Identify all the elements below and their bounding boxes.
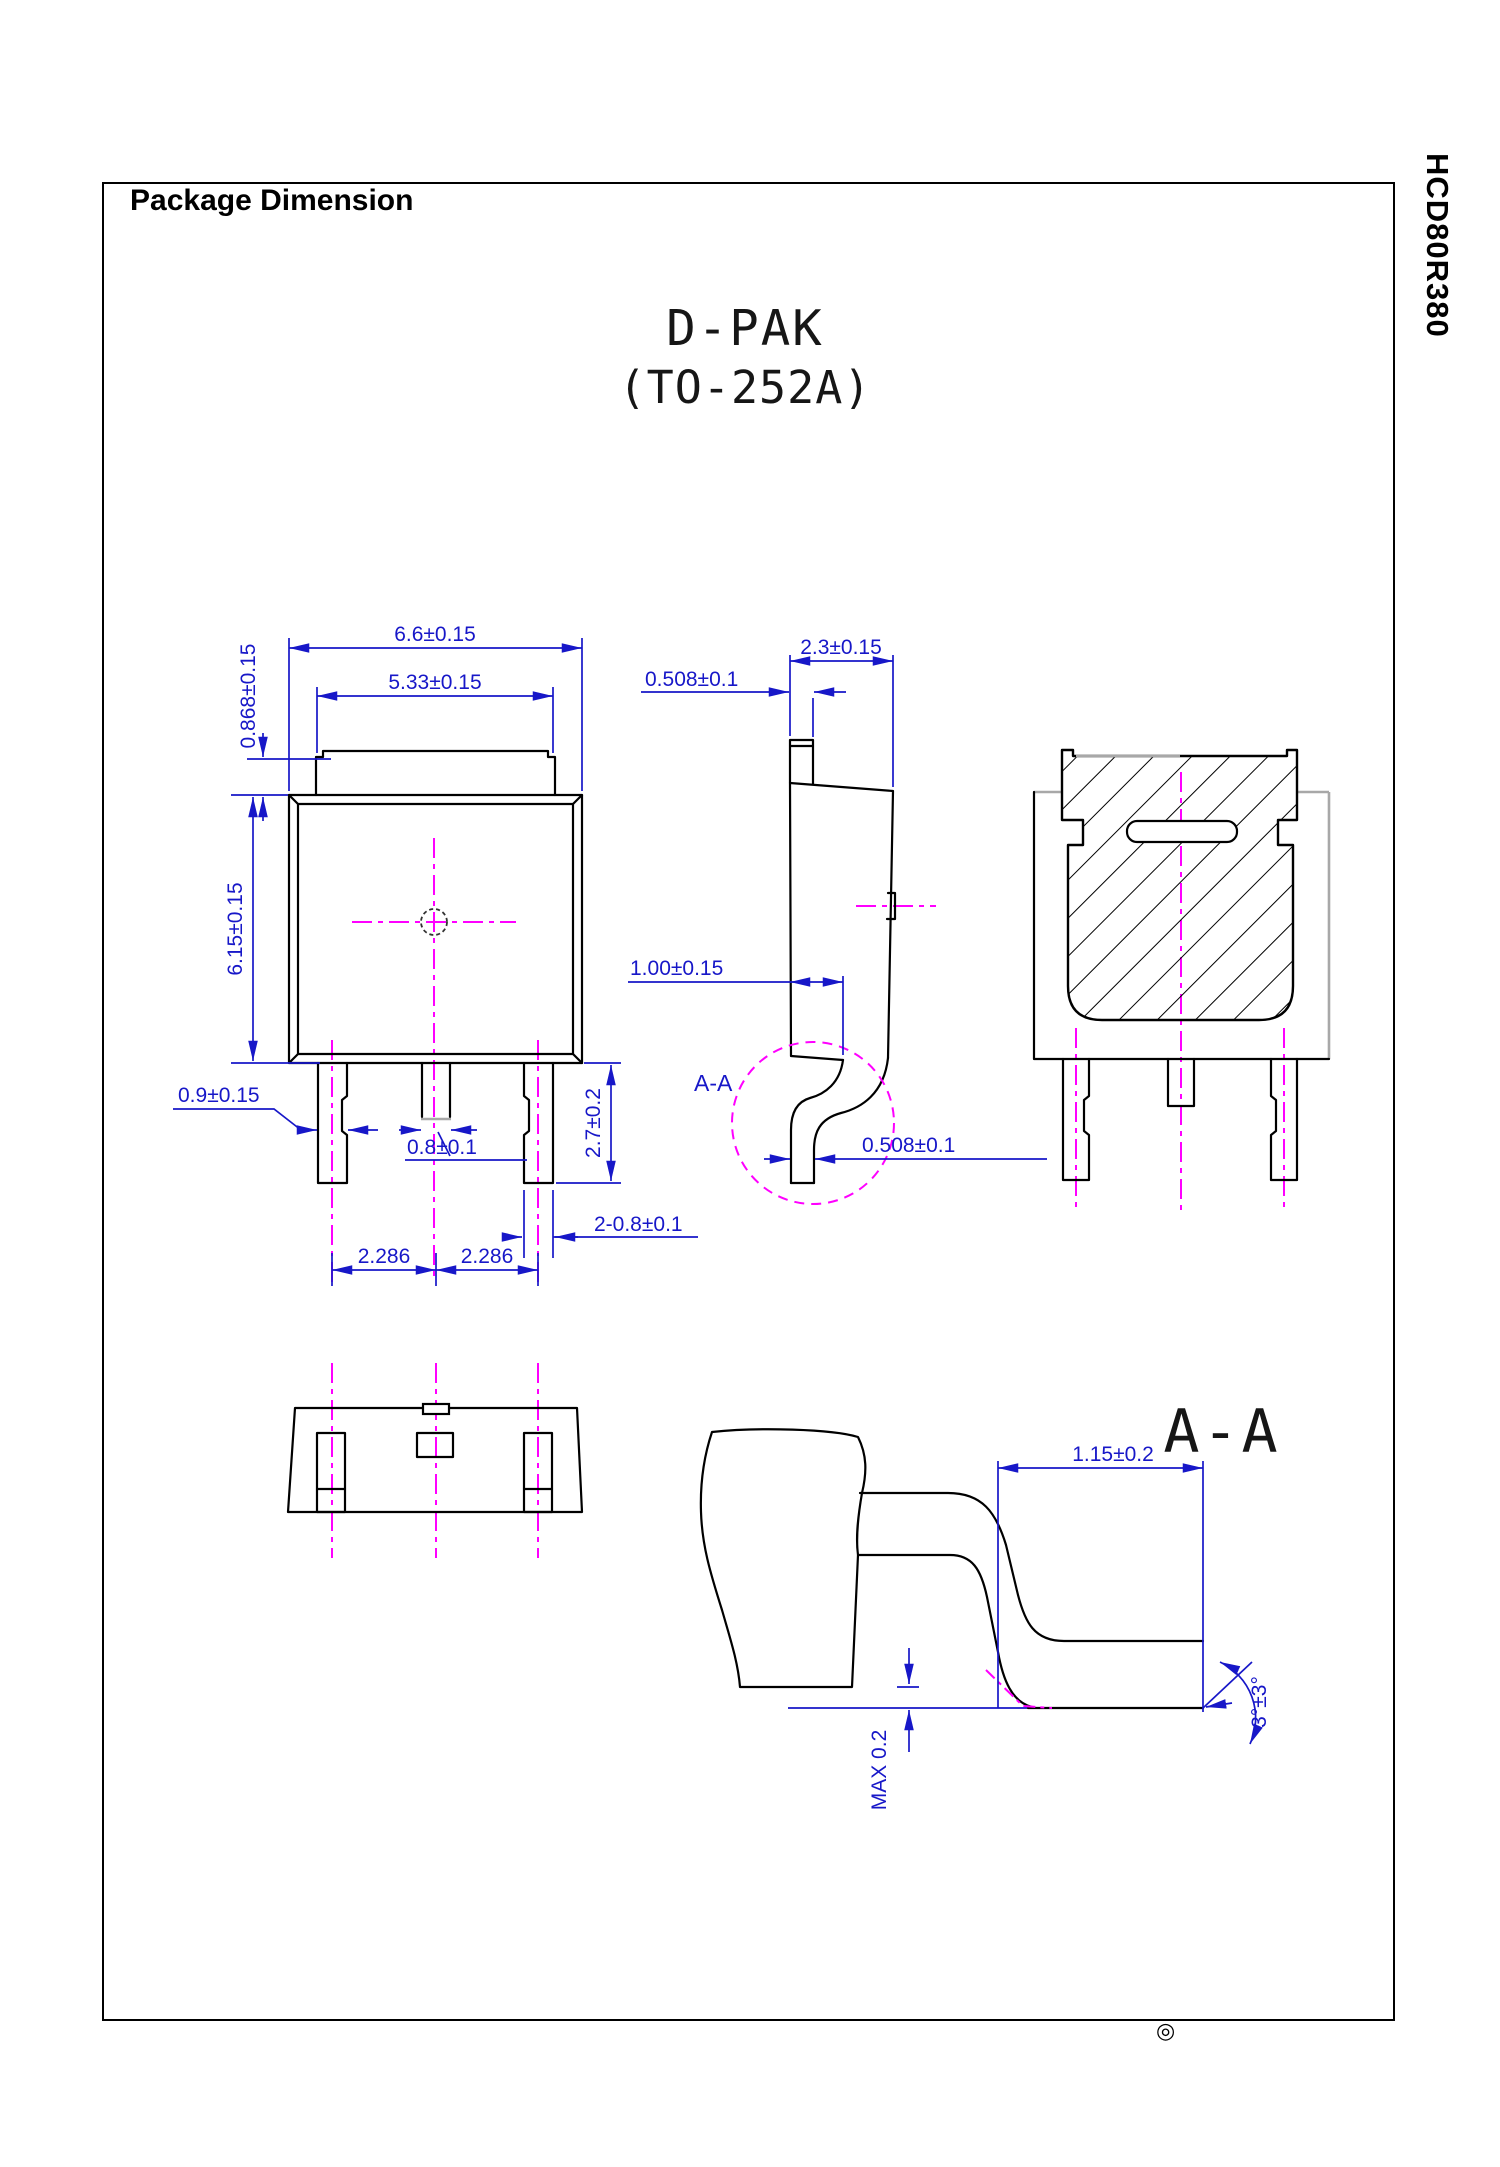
bottom-centerlines: [332, 1363, 538, 1558]
dim-lead-thickness: 0.508±0.1: [862, 1134, 955, 1157]
front-width-witness-lines: [289, 638, 582, 791]
package-dimension-drawing: 6.6±0.15 5.33±0.15 0.868±0.15 6.15±0.15 …: [0, 0, 1500, 2167]
front-tab-outline: [316, 751, 555, 795]
dim-tab-height: 0.868±0.15: [237, 644, 260, 749]
section-aa-label: A-A: [694, 1070, 733, 1096]
dim-body-height: 6.15±0.15: [224, 882, 247, 975]
dim-standoff: MAX 0.2: [868, 1730, 891, 1811]
dim-center-lead-width: 0.8±0.1: [407, 1136, 477, 1159]
detail-lead-upper-edge: [860, 1493, 1203, 1641]
dim-outer-lead-width: 0.9±0.15: [178, 1084, 260, 1107]
side-lead-inner-curve: [791, 1060, 843, 1183]
front-view: 6.6±0.15 5.33±0.15 0.868±0.15 6.15±0.15 …: [173, 623, 698, 1286]
dim-tab-thickness: 0.508±0.1: [645, 668, 738, 691]
bottom-body-outline: [288, 1408, 582, 1512]
front-body-chamfers: [289, 795, 582, 1063]
dim-pitch-right: 2.286: [461, 1245, 514, 1268]
detail-lead-lower-edge: [858, 1555, 1032, 1707]
front-body-outline: [289, 795, 582, 1063]
dim-outer-leads: 2-0.8±0.1: [594, 1213, 683, 1236]
dim-foot-length: 1.15±0.2: [1072, 1443, 1154, 1466]
front-body-inner-outline: [298, 804, 573, 1054]
dim-lead-offset: 1.00±0.15: [630, 957, 723, 980]
front-center-lead: [422, 1063, 450, 1117]
side-tab-outline: [790, 740, 813, 784]
side-view: 2.3±0.15 0.508±0.1 1.00±0.15 0.508±0.1 A…: [628, 636, 1047, 1204]
back-tab-slot: [1127, 821, 1237, 842]
dim-body-width: 6.6±0.15: [394, 623, 476, 646]
detail-body-outline: [701, 1429, 866, 1687]
dim-tab-width: 5.33±0.15: [388, 671, 481, 694]
bottom-tab-notch: [423, 1404, 449, 1414]
detail-heel-tangent: [986, 1670, 1052, 1708]
dim-lead-angle: 3°±3°: [1248, 1676, 1271, 1728]
detail-aa-view: A-A 1.15±0.2 MAX 0.2 3°±3°: [701, 1397, 1281, 1810]
back-view: [1034, 750, 1329, 1210]
dim-pitch-left: 2.286: [358, 1245, 411, 1268]
detail-title: A-A: [1163, 1397, 1280, 1467]
bottom-view: [288, 1363, 582, 1558]
back-heatsink-tab-hatched: [1062, 750, 1297, 1020]
side-body-outline: [790, 783, 893, 1060]
front-tab-witness-lines: [317, 687, 553, 753]
dim-lead-length: 2.7±0.2: [582, 1088, 605, 1158]
side-lead-outer-curve: [814, 1058, 888, 1183]
dim-thickness: 2.3±0.15: [800, 636, 882, 659]
